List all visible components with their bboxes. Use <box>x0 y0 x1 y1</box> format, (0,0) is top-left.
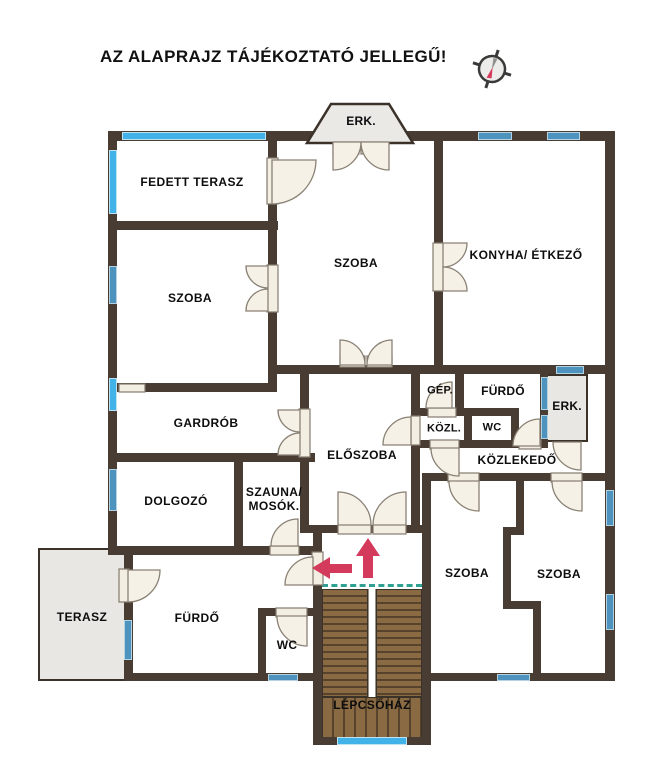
wall <box>234 457 243 553</box>
window <box>606 490 614 526</box>
window <box>497 674 530 681</box>
wall <box>117 453 315 462</box>
window <box>109 266 117 304</box>
room-label-terasz: TERASZ <box>57 611 107 625</box>
arrow-up-icon <box>356 538 380 578</box>
window <box>541 377 548 410</box>
window <box>109 469 117 511</box>
room-label-wc-upper: WC <box>483 422 502 435</box>
door-arc <box>443 243 467 267</box>
door-arc <box>373 492 406 525</box>
wall <box>533 605 541 681</box>
door-arc <box>553 442 581 470</box>
room-label-kozlekedo: KÖZLEKEDŐ <box>478 454 557 468</box>
wall <box>464 408 472 448</box>
room-label-dolgozo: DOLGOZÓ <box>144 495 207 509</box>
wall <box>411 365 420 533</box>
room-label-szoba-bottom-left: SZOBA <box>445 567 489 581</box>
wall <box>415 440 548 448</box>
door-leaf <box>361 142 387 154</box>
wall <box>422 473 431 745</box>
door-leaf <box>333 142 359 154</box>
room-label-furdo-lower: FÜRDŐ <box>175 612 220 626</box>
door-arc <box>449 481 479 511</box>
door-arc <box>338 492 371 525</box>
door-arc <box>340 340 365 365</box>
door-arc <box>333 142 361 170</box>
door-arc <box>361 142 389 170</box>
room-label-erk-top: ERK. <box>346 115 375 129</box>
door-arc <box>278 433 300 455</box>
room-label-szoba-top: SZOBA <box>334 257 378 271</box>
wall <box>503 531 511 609</box>
wall <box>117 383 277 392</box>
room-label-konyha: KONYHA/ ÉTKEZŐ <box>470 249 583 263</box>
wall <box>108 221 278 230</box>
plan-title: AZ ALAPRAJZ TÁJÉKOZTATÓ JELLEGŰ! <box>100 47 447 67</box>
wall <box>108 546 322 555</box>
room-label-szauna: SZAUNA/ MOSÓK. <box>246 486 302 514</box>
room-label-szoba-bottom-right: SZOBA <box>537 568 581 582</box>
window <box>547 132 580 140</box>
wall <box>511 408 519 448</box>
stair-start-line <box>322 584 422 587</box>
door-arc <box>271 519 298 546</box>
door-arc <box>246 266 268 288</box>
window <box>556 366 584 374</box>
stair-flight-left <box>322 589 368 697</box>
door-arc <box>552 481 582 511</box>
wall <box>258 608 315 616</box>
door-arc <box>272 160 316 204</box>
room-label-gardrob: GARDRÓB <box>174 417 239 431</box>
window <box>541 415 548 439</box>
room-label-wc-lower: WC <box>277 639 297 653</box>
room-label-furdo-upper: FÜRDŐ <box>481 385 525 399</box>
room-label-szoba-left: SZOBA <box>168 292 212 306</box>
room-label-kozl: KÖZL. <box>427 423 461 436</box>
window <box>122 132 266 140</box>
window <box>109 150 117 214</box>
door-arc <box>278 410 300 432</box>
wall <box>258 608 266 681</box>
window <box>124 620 132 660</box>
stair-gap <box>368 589 376 697</box>
window <box>478 132 512 140</box>
door-arc <box>246 289 268 311</box>
door-arc <box>431 448 459 476</box>
wall <box>423 473 615 481</box>
door-arc <box>383 417 411 445</box>
wall <box>455 374 464 414</box>
wall <box>124 548 133 681</box>
door-arc <box>367 340 392 365</box>
window <box>606 594 614 630</box>
door-arc <box>285 557 313 585</box>
window <box>268 674 298 681</box>
room-label-erk-right: ERK. <box>552 400 581 414</box>
room-label-fedett-terasz: FEDETT TERASZ <box>140 176 243 190</box>
wall <box>313 525 322 745</box>
room-label-lepcsohaz: LÉPCSŐHÁZ <box>333 699 411 713</box>
wall <box>434 131 443 374</box>
wall <box>516 481 524 533</box>
room-label-eloszoba: ELŐSZOBA <box>327 449 397 463</box>
floor-plan: AZ ALAPRAJZ TÁJÉKOZTATÓ JELLEGŰ! <box>0 0 646 768</box>
room-label-gep: GÉP. <box>427 385 453 398</box>
wall <box>268 131 277 392</box>
stair-flight-right <box>376 589 422 697</box>
window <box>337 737 407 745</box>
window <box>109 378 117 411</box>
door-arc <box>443 267 467 291</box>
compass-icon <box>462 39 522 99</box>
